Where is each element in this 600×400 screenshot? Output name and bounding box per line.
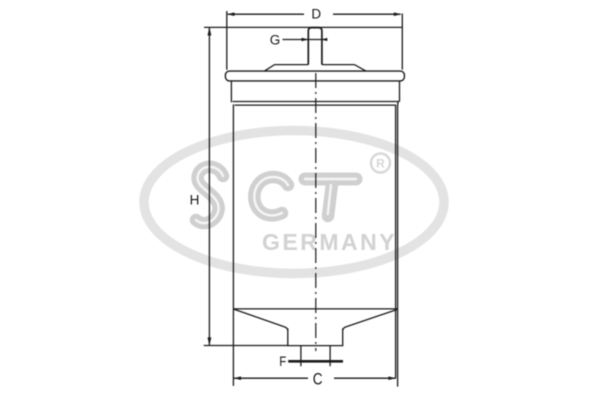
svg-text:C: C [313, 370, 323, 389]
svg-text:D: D [311, 6, 321, 21]
svg-text:GERMANY: GERMANY [262, 229, 397, 255]
svg-text:R: R [376, 157, 385, 171]
svg-text:H: H [190, 193, 200, 208]
svg-text:G: G [270, 32, 281, 47]
svg-text:F: F [279, 354, 286, 369]
